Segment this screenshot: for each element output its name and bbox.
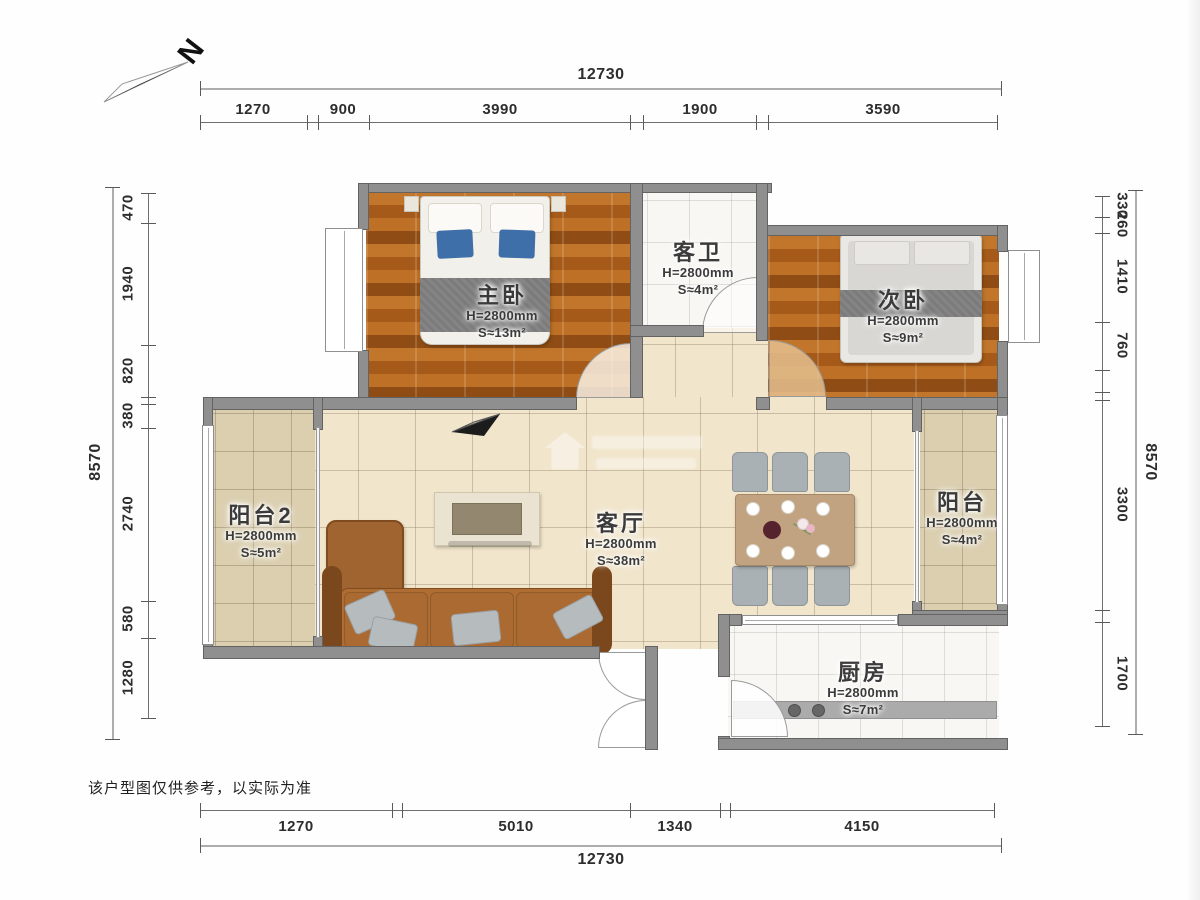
blue-cushion (436, 229, 473, 259)
room-label-balcony2: 阳台2 H=2800mm S≈5m² (196, 503, 326, 562)
wall (718, 738, 1008, 750)
ceiling-fan-icon (450, 410, 506, 444)
dim-left-1: 1940 (120, 254, 137, 314)
dim-right-3: 760 (1114, 316, 1131, 376)
dim-top-3: 1900 (660, 101, 740, 118)
dim-left-total: 8570 (87, 432, 105, 492)
wall (898, 614, 1008, 626)
dim-right-4: 3300 (1114, 475, 1131, 535)
room-area: S≈4m² (678, 282, 718, 299)
dim-left-0: 470 (120, 178, 137, 238)
room-label-second-bedroom: 次卧 H=2800mm S≈9m² (833, 288, 973, 347)
plate (746, 502, 760, 516)
room-name: 次卧 (878, 288, 928, 313)
room-name: 客卫 (673, 240, 723, 265)
room-area: S≈4m² (942, 532, 982, 549)
dim-right-2: 1410 (1114, 247, 1131, 307)
page-edge-shade (1186, 0, 1200, 900)
tv-shadow (448, 541, 532, 547)
dim-left-6: 1280 (120, 648, 137, 708)
nightstand (551, 196, 566, 212)
dim-right-1: 260 (1114, 195, 1131, 255)
blue-cushion (499, 229, 536, 258)
wall (997, 397, 1008, 417)
wall (313, 397, 323, 430)
dim-top-2: 3990 (460, 101, 540, 118)
wall (203, 397, 213, 427)
room-area: S≈38m² (597, 553, 645, 570)
dim-top-total-line (200, 88, 1002, 90)
wall (912, 397, 922, 432)
dim-right-segment-line (1102, 196, 1103, 727)
dim-left-4: 2740 (120, 484, 137, 544)
wall (756, 225, 1008, 236)
room-height: H=2800mm (225, 528, 296, 545)
master-bedroom-window (325, 228, 363, 352)
plate (816, 544, 830, 558)
wall (358, 183, 369, 230)
room-label-kitchen: 厨房 H=2800mm S≈7m² (793, 660, 933, 719)
disclaimer-text: 该户型图仅供参考，以实际为准 (88, 777, 312, 798)
room-label-master-bedroom: 主卧 H=2800mm S≈13m² (432, 283, 572, 342)
dim-top-segment-line (200, 122, 998, 123)
dim-left-5: 580 (120, 589, 137, 649)
bed-pillow (854, 241, 910, 265)
dining-chair (772, 566, 808, 606)
room-height: H=2800mm (867, 313, 938, 330)
room-height: H=2800mm (827, 685, 898, 702)
bed-pillow (490, 203, 544, 233)
wall (203, 646, 600, 659)
wall (718, 614, 730, 677)
plate (746, 544, 760, 558)
tv-screen (452, 503, 522, 535)
dim-right-5: 1700 (1114, 644, 1131, 704)
wall (645, 646, 658, 750)
second-bedroom-window (1008, 250, 1040, 343)
wall (203, 397, 577, 410)
entry-door-arc-lower (598, 700, 646, 748)
dim-bottom-total-line (200, 845, 1002, 847)
bed-pillow (914, 241, 970, 265)
room-height: H=2800mm (926, 515, 997, 532)
dim-bottom-segment-line (200, 810, 995, 811)
room-name: 主卧 (477, 283, 527, 308)
room-area: S≈7m² (843, 702, 883, 719)
dim-left-total-line (112, 187, 114, 740)
dining-chair (772, 452, 808, 492)
dim-right-total: 8570 (1141, 432, 1159, 492)
flower-vase (806, 524, 815, 533)
sofa-armrest (322, 566, 342, 654)
dim-bottom-0: 1270 (256, 818, 336, 835)
dim-bottom-1: 5010 (476, 818, 556, 835)
wall (630, 325, 704, 337)
room-area: S≈5m² (241, 545, 281, 562)
watermark-text-bar (596, 458, 696, 469)
dim-bottom-2: 1340 (635, 818, 715, 835)
dim-top-0: 1270 (213, 101, 293, 118)
wall (358, 183, 772, 193)
plate (816, 502, 830, 516)
room-area: S≈9m² (883, 330, 923, 347)
dim-bottom-total: 12730 (561, 851, 641, 869)
room-height: H=2800mm (662, 265, 733, 282)
nightstand (404, 196, 419, 212)
room-name: 客厅 (596, 511, 646, 536)
room-name: 阳台 (937, 490, 987, 515)
dining-chair (732, 566, 768, 606)
watermark-text-bar (592, 436, 702, 449)
room-height: H=2800mm (466, 308, 537, 325)
dim-top-total: 12730 (561, 66, 641, 84)
compass-n-label: N (172, 33, 211, 70)
floor-plan-page: N 12730 1270 900 3990 1900 3590 1270 501… (0, 0, 1200, 900)
dim-left-3: 380 (120, 386, 137, 446)
room-height: H=2800mm (585, 536, 656, 553)
wall (997, 225, 1008, 252)
dining-chair (732, 452, 768, 492)
room-area: S≈13m² (478, 325, 526, 342)
dim-top-1: 900 (303, 101, 383, 118)
dim-top-4: 3590 (843, 101, 923, 118)
dining-chair (814, 452, 850, 492)
north-compass-icon: N (88, 32, 218, 122)
room-name: 厨房 (838, 660, 888, 685)
dim-left-segment-line (148, 193, 149, 719)
room-name: 阳台2 (228, 503, 293, 528)
plate (781, 546, 795, 560)
fruit-bowl (763, 521, 781, 539)
dining-chair (814, 566, 850, 606)
plate (781, 500, 795, 514)
dim-bottom-3: 4150 (822, 818, 902, 835)
dim-right-total-line (1135, 190, 1137, 735)
sofa-pillow (450, 610, 501, 647)
room-label-guest-bathroom: 客卫 H=2800mm S≈4m² (628, 240, 768, 299)
room-label-living-room: 客厅 H=2800mm S≈38m² (551, 511, 691, 570)
wall (756, 397, 770, 410)
wall (358, 350, 369, 400)
bed-pillow (428, 203, 482, 233)
kitchen-pass-window (742, 615, 898, 625)
room-label-balcony: 阳台 H=2800mm S≈4m² (902, 490, 1022, 549)
entry-door-arc-upper (598, 652, 646, 700)
